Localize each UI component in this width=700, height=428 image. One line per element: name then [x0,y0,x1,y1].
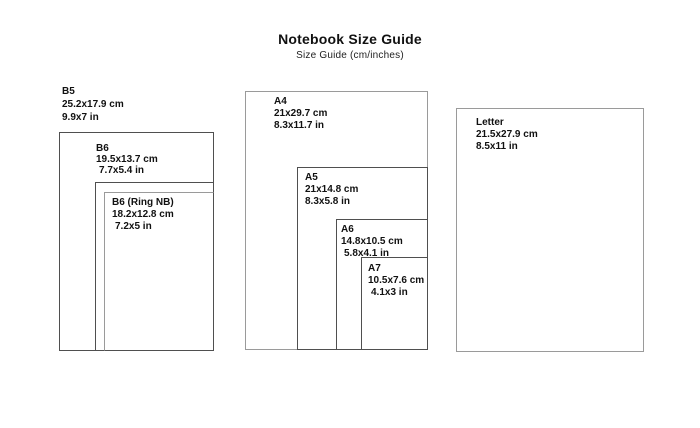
page-subtitle: Size Guide (cm/inches) [0,50,700,61]
header: Notebook Size Guide Size Guide (cm/inche… [0,31,700,61]
size-in: 4.1x3 in [368,287,424,299]
size-in: 7.2x5 in [112,221,174,233]
size-label-a6: A6 14.8x10.5 cm 5.8x4.1 in [341,224,403,260]
size-in: 7.7x5.4 in [96,165,158,176]
size-label-b6-ring: B6 (Ring NB) 18.2x12.8 cm 7.2x5 in [112,197,174,233]
size-cm: 21x29.7 cm [274,108,327,120]
size-cm: 10.5x7.6 cm [368,275,424,287]
size-cm: 18.2x12.8 cm [112,209,174,221]
size-label-letter: Letter 21.5x27.9 cm 8.5x11 in [476,117,538,153]
size-in: 8.3x11.7 in [274,120,327,132]
size-name: A7 [368,263,424,275]
size-name: A5 [305,172,358,184]
size-name: B6 (Ring NB) [112,197,174,209]
size-label-b5: B5 25.2x17.9 cm 9.9x7 in [62,85,124,124]
size-in: 5.8x4.1 in [341,248,403,260]
size-name: B5 [62,85,124,98]
size-label-a4: A4 21x29.7 cm 8.3x11.7 in [274,96,327,132]
size-name: A4 [274,96,327,108]
size-label-a5: A5 21x14.8 cm 8.3x5.8 in [305,172,358,208]
size-cm: 21x14.8 cm [305,184,358,196]
size-guide-canvas: Notebook Size Guide Size Guide (cm/inche… [0,0,700,428]
page-title: Notebook Size Guide [0,31,700,47]
size-cm: 25.2x17.9 cm [62,98,124,111]
size-in: 8.3x5.8 in [305,196,358,208]
size-label-a7: A7 10.5x7.6 cm 4.1x3 in [368,263,424,299]
size-cm: 21.5x27.9 cm [476,129,538,141]
size-name: Letter [476,117,538,129]
size-name: B6 [96,143,158,154]
size-cm: 14.8x10.5 cm [341,236,403,248]
size-label-b6: B6 19.5x13.7 cm 7.7x5.4 in [96,143,158,176]
size-in: 9.9x7 in [62,111,124,124]
size-name: A6 [341,224,403,236]
size-in: 8.5x11 in [476,141,538,153]
size-cm: 19.5x13.7 cm [96,154,158,165]
